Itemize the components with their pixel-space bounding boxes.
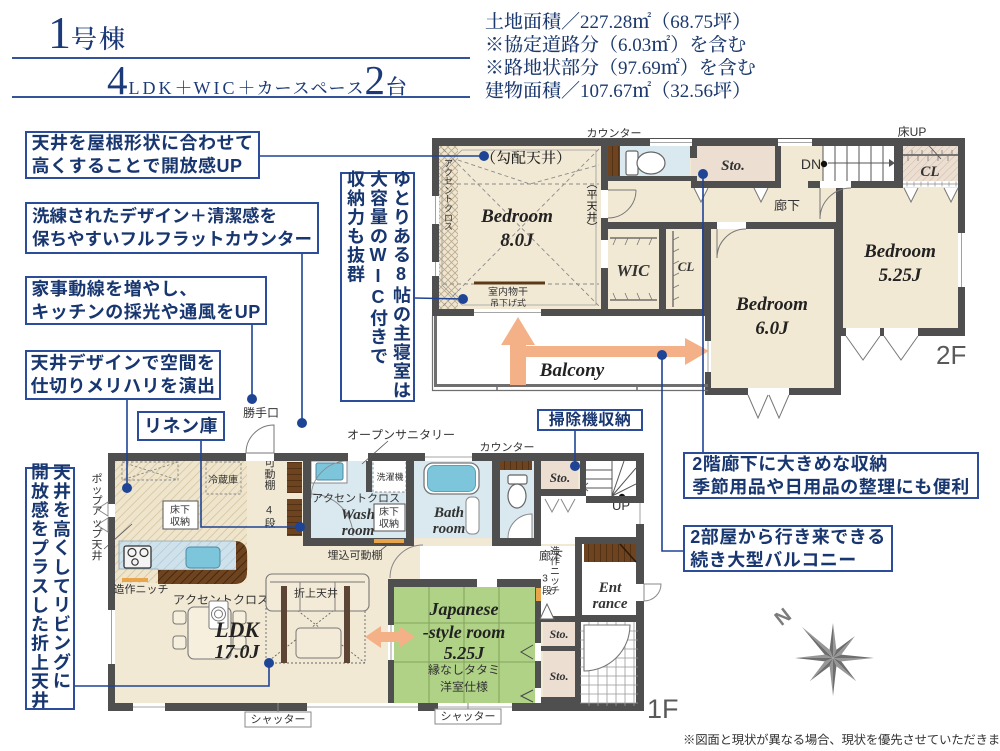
svg-text:-style room: -style room [423,622,506,642]
svg-text:Bedroom: Bedroom [480,206,553,227]
svg-text:WIC: WIC [616,261,650,280]
svg-text:DN: DN [801,156,821,172]
svg-text:Bedroom: Bedroom [863,241,936,262]
svg-text:Ent: Ent [598,580,622,596]
svg-text:Balcony: Balcony [539,360,605,381]
svg-text:アクセントクロス: アクセントクロス [443,158,453,231]
svg-text:Sto.: Sto. [550,470,571,485]
svg-text:吊下げ式: 吊下げ式 [490,298,526,308]
svg-text:アクセントクロス: アクセントクロス [312,493,400,505]
svg-text:収納: 収納 [170,516,190,528]
svg-text:縁なしタタミ: 縁なしタタミ [428,663,500,677]
svg-text:8.0J: 8.0J [500,230,534,251]
svg-text:4段: 4段 [263,505,276,528]
svg-text:（平天井）: （平天井） [585,178,598,233]
svg-text:Bedroom: Bedroom [735,294,808,315]
svg-text:冷蔵庫: 冷蔵庫 [208,474,238,486]
svg-text:3段: 3段 [540,574,552,595]
svg-text:CL: CL [678,259,695,274]
svg-text:造作ニッチ: 造作ニッチ [114,583,169,596]
svg-text:シャッター: シャッター [441,711,496,723]
svg-text:洋室仕様: 洋室仕様 [440,680,488,694]
svg-text:床下: 床下 [379,506,399,518]
svg-text:CL: CL [920,164,939,180]
svg-text:Japanese: Japanese [429,599,499,619]
svg-text:洗濯機: 洗濯機 [376,472,403,482]
svg-text:埋込可動棚: 埋込可動棚 [328,549,383,562]
svg-text:カウンター: カウンター [587,128,642,140]
svg-text:（勾配天井）: （勾配天井） [481,150,571,167]
svg-text:勝手口: 勝手口 [243,406,279,420]
svg-text:ポップアップ天井: ポップアップ天井 [90,472,103,560]
svg-text:可動棚: 可動棚 [263,457,276,490]
svg-text:Wash: Wash [341,507,375,523]
svg-text:room: room [342,523,375,539]
svg-text:シャッター: シャッター [251,714,306,726]
svg-text:Bath: Bath [433,505,464,521]
svg-text:17.0J: 17.0J [215,641,261,663]
svg-text:室内物干: 室内物干 [488,286,528,298]
svg-text:収納: 収納 [379,518,399,530]
svg-text:room: room [433,521,466,537]
svg-text:床UP: 床UP [898,125,927,139]
svg-text:オープンサニタリー: オープンサニタリー [347,428,455,442]
svg-text:カウンター: カウンター [480,442,535,454]
svg-text:rance: rance [593,596,628,612]
svg-text:5.25J: 5.25J [444,643,486,663]
svg-text:5.25J: 5.25J [879,265,922,286]
svg-text:LDK: LDK [214,617,260,642]
svg-text:N: N [771,604,796,630]
svg-text:Sto.: Sto. [549,627,568,641]
svg-text:Sto.: Sto. [721,158,745,174]
svg-text:Sto.: Sto. [549,669,568,683]
svg-text:床下: 床下 [170,504,190,516]
svg-text:折上天井: 折上天井 [294,587,338,600]
svg-text:6.0J: 6.0J [755,318,789,339]
svg-text:廊下: 廊下 [774,198,800,213]
